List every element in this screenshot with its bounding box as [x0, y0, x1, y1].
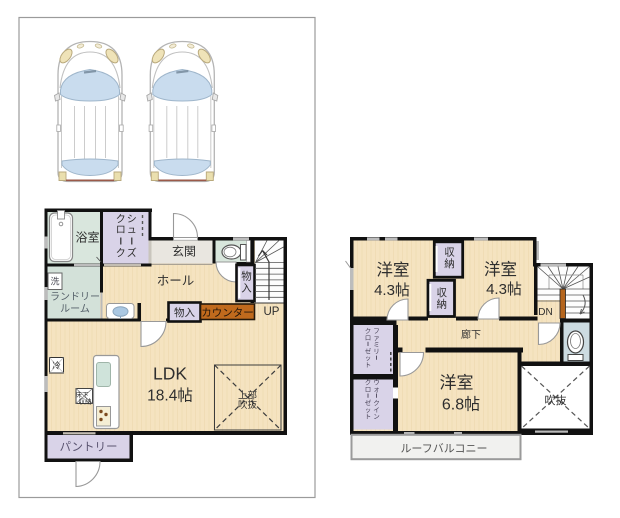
svg-text:浴室: 浴室 — [75, 230, 99, 245]
svg-text:ランドリー: ランドリー — [50, 291, 100, 303]
svg-text:ズ: ズ — [127, 247, 137, 260]
svg-text:ロ: ロ — [365, 335, 372, 342]
svg-text:ク: ク — [365, 327, 372, 335]
svg-text:リ: リ — [373, 348, 380, 355]
svg-text:冷: 冷 — [52, 361, 61, 371]
svg-text:ト: ト — [365, 362, 372, 369]
svg-text:ォ: ォ — [373, 386, 380, 393]
svg-text:ク: ク — [116, 214, 126, 226]
svg-text:18.4帖: 18.4帖 — [147, 387, 193, 405]
svg-text:入: 入 — [241, 283, 252, 295]
svg-text:洗: 洗 — [50, 276, 59, 287]
svg-text:物: 物 — [241, 270, 252, 283]
svg-text:ホール: ホール — [157, 274, 195, 288]
svg-text:物入: 物入 — [174, 306, 195, 319]
svg-text:4.3帖: 4.3帖 — [374, 282, 410, 299]
svg-text:収: 収 — [437, 287, 448, 299]
svg-text:吹抜: 吹抜 — [545, 393, 567, 407]
svg-text:ルーフバルコニー: ルーフバルコニー — [400, 442, 487, 455]
svg-text:ン: ン — [373, 414, 380, 421]
svg-text:納: 納 — [444, 257, 455, 270]
svg-text:ゼ: ゼ — [365, 346, 372, 355]
svg-text:収: 収 — [444, 247, 455, 259]
svg-text:カウンター: カウンター — [201, 307, 254, 319]
svg-text:玄関: 玄関 — [172, 244, 196, 259]
svg-text:シ: シ — [127, 215, 137, 226]
svg-text:ク: ク — [365, 379, 372, 387]
svg-text:6.8帖: 6.8帖 — [442, 396, 480, 414]
svg-text:ロ: ロ — [365, 386, 372, 393]
svg-text:DN: DN — [538, 307, 552, 318]
svg-text:収納: 収納 — [79, 397, 92, 406]
svg-text:洋室: 洋室 — [484, 260, 517, 279]
svg-text:ュ: ュ — [127, 225, 137, 236]
svg-text:ウ: ウ — [373, 379, 380, 387]
svg-text:納: 納 — [437, 298, 448, 311]
svg-text:ク: ク — [116, 248, 126, 260]
svg-text:ルーム: ルーム — [60, 303, 90, 315]
svg-text:パントリー: パントリー — [59, 441, 117, 454]
svg-text:ゼ: ゼ — [365, 398, 372, 407]
svg-text:LDK: LDK — [153, 364, 187, 384]
svg-text:4.3帖: 4.3帖 — [486, 281, 522, 298]
svg-text:ロ: ロ — [116, 225, 126, 236]
svg-text:洋室: 洋室 — [440, 374, 474, 393]
svg-text:吹抜: 吹抜 — [238, 399, 258, 411]
svg-text:洋室: 洋室 — [377, 261, 410, 280]
svg-text:ク: ク — [373, 399, 380, 407]
svg-text:フ: フ — [373, 327, 380, 335]
svg-text:UP: UP — [264, 306, 280, 318]
svg-text:ト: ト — [365, 414, 372, 421]
svg-text:廊下: 廊下 — [461, 328, 481, 341]
